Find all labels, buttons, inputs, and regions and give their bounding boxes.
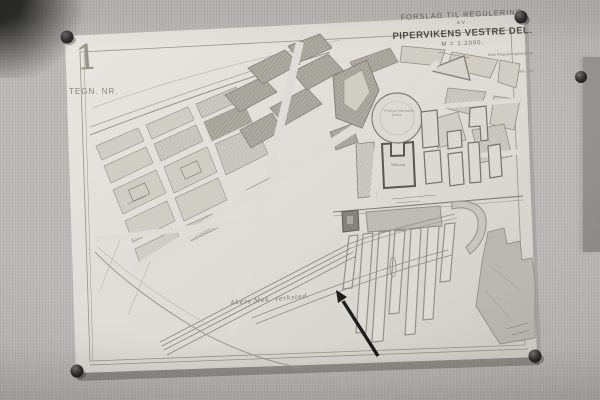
- plaza-label-line-2: plass: [384, 113, 409, 117]
- photograph-of-pinned-map: 1 TEGN. NR. FORSLAG TIL REGULERING AV PI…: [0, 0, 600, 400]
- pushpin-wall-right: [575, 71, 587, 83]
- signature-line-1: Oslo Reguleringsvesenet: [488, 51, 534, 57]
- pushpin-top-left: [61, 31, 77, 46]
- street-label-munkedamsveien: MUNKEDAMSVEIEN: [0, 0, 44, 10]
- plaza-label: Fridtjof Nansens plass: [384, 109, 409, 117]
- title-block: FORSLAG TIL REGULERING AV PIPERVIKENS VE…: [391, 7, 534, 87]
- drawing-number: 1: [75, 37, 99, 78]
- city-hall-label: Rådhuset: [391, 163, 405, 167]
- circular-plaza: [372, 93, 422, 143]
- signature-line-2: febr. -47: [519, 69, 534, 74]
- drawing-number-caption: TEGN. NR.: [69, 87, 118, 96]
- signature: Oslo Reguleringsvesenet febr. -47: [393, 45, 534, 87]
